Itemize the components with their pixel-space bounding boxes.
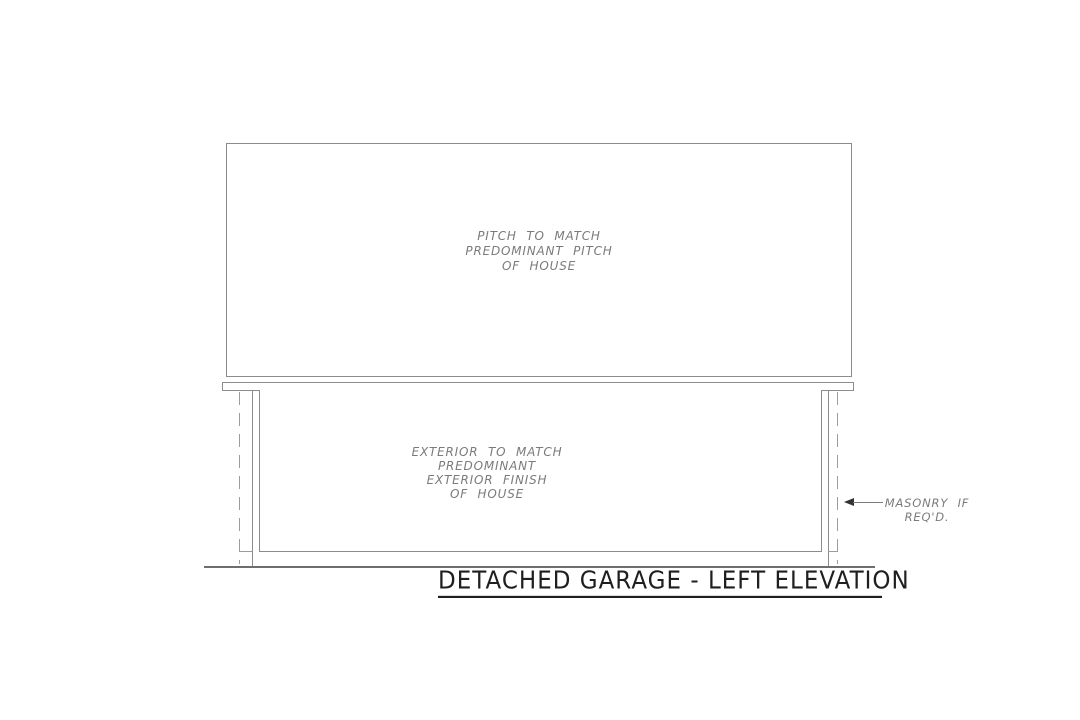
masonry-note-line-1: MASONRY IF <box>880 496 974 510</box>
wall-finish-note-line-2: PREDOMINANT <box>387 459 587 473</box>
right-corner-trim-line <box>828 390 829 568</box>
left-corner-trim-line <box>252 390 253 568</box>
drawing-title: DETACHED GARAGE - LEFT ELEVATION <box>438 567 882 598</box>
masonry-dashed-line-left <box>239 392 240 564</box>
roof-pitch-note-line-2: PREDOMINANT PITCH <box>429 244 649 259</box>
wall-finish-note-line-3: EXTERIOR FINISH <box>387 473 587 487</box>
masonry-dashed-line-right <box>837 392 838 564</box>
roof-pitch-note-line-3: OF HOUSE <box>429 259 649 274</box>
masonry-leader-line <box>853 502 883 503</box>
masonry-note: MASONRY IF REQ'D. <box>880 496 974 524</box>
elevation-sheet: PITCH TO MATCH PREDOMINANT PITCH OF HOUS… <box>0 0 1080 720</box>
roof-pitch-note-line-1: PITCH TO MATCH <box>429 229 649 244</box>
roof-pitch-note: PITCH TO MATCH PREDOMINANT PITCH OF HOUS… <box>429 229 649 274</box>
masonry-base-tick-left <box>239 551 252 552</box>
wall-finish-note-line-1: EXTERIOR TO MATCH <box>387 445 587 459</box>
wall-finish-note-line-4: OF HOUSE <box>387 487 587 501</box>
masonry-base-tick-right <box>828 551 837 552</box>
masonry-note-line-2: REQ'D. <box>880 510 974 524</box>
wall-finish-note: EXTERIOR TO MATCH PREDOMINANT EXTERIOR F… <box>387 445 587 501</box>
